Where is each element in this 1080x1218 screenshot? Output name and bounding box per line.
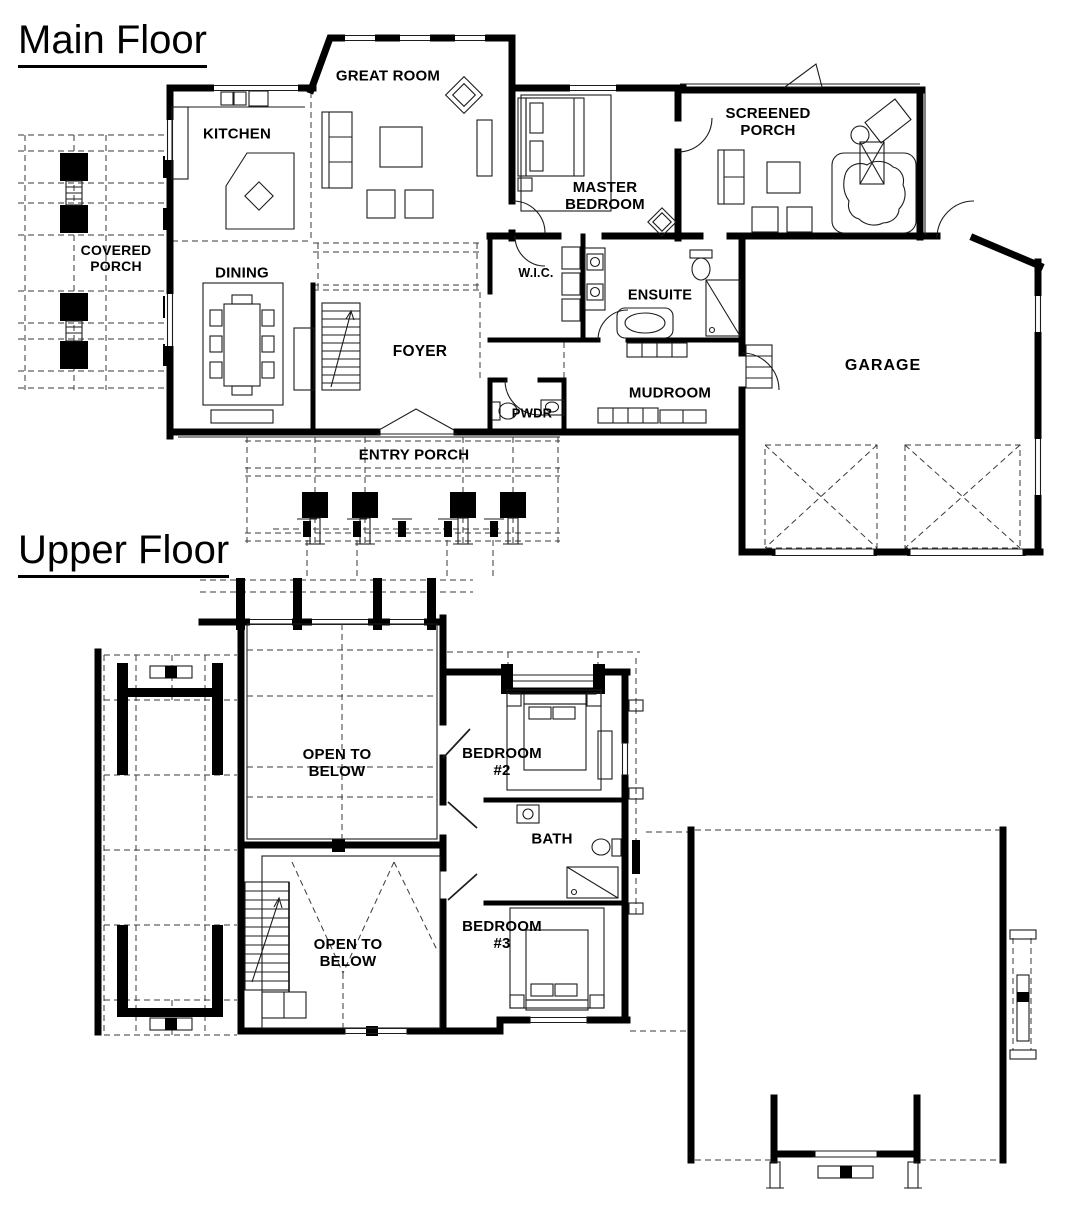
room-label-bedroom-2: BEDROOM #2 xyxy=(462,745,542,780)
bath-fixtures xyxy=(517,805,621,898)
room-label-great-room: GREAT ROOM xyxy=(336,67,440,84)
room-label-open-to-below-rear: OPEN TO BELOW xyxy=(314,936,383,971)
upper-floor-windows xyxy=(250,617,628,1034)
porch-post-icon xyxy=(450,492,476,518)
wic-shelves xyxy=(562,247,580,321)
bed-icon xyxy=(518,98,526,176)
nightstand-icon xyxy=(518,178,532,191)
room-label-foyer: FOYER xyxy=(393,343,447,361)
porch-post-icon xyxy=(500,492,526,518)
porch-post-icon xyxy=(117,663,128,775)
porch-post-icon xyxy=(60,153,88,181)
chair-icon xyxy=(752,207,778,232)
master-bedroom-furniture xyxy=(518,95,676,236)
toilet-icon xyxy=(612,839,621,856)
floor-plan-sheet: Main Floor Upper Floor KITCHEN GREAT ROO… xyxy=(0,0,1080,1218)
room-label-covered-porch: COVERED PORCH xyxy=(81,242,152,274)
dining-furniture xyxy=(203,283,283,423)
stove-icon xyxy=(865,99,911,143)
nightstand-icon xyxy=(590,995,604,1008)
dresser-icon xyxy=(598,731,612,779)
main-stairs-icon xyxy=(294,303,360,390)
room-label-master-bedroom: MASTER BEDROOM xyxy=(565,179,645,214)
room-label-entry-porch: ENTRY PORCH xyxy=(359,446,470,463)
room-label-ensuite: ENSUITE xyxy=(628,288,692,305)
room-label-bedroom-3: BEDROOM #3 xyxy=(462,918,542,953)
toilet-icon xyxy=(690,250,712,258)
room-label-screened-porch: SCREENED PORCH xyxy=(726,105,811,140)
porch-post-icon xyxy=(212,663,223,775)
upper-stairs-icon xyxy=(245,882,306,1018)
porch-post-icon xyxy=(60,341,88,369)
porch-roof-structure xyxy=(98,652,237,1035)
cooktop-icon xyxy=(245,182,273,210)
armchair-icon xyxy=(367,190,395,218)
mudroom-furniture xyxy=(598,343,772,423)
room-label-bath: BATH xyxy=(531,830,572,847)
porch-post-icon xyxy=(302,492,328,518)
garage-parking-stalls xyxy=(765,445,1020,548)
great-room-furniture xyxy=(322,77,492,218)
porch-post-icon xyxy=(117,925,128,1017)
room-label-open-to-below-front: OPEN TO BELOW xyxy=(303,746,372,781)
upper-floor-plan xyxy=(98,519,1036,1188)
porch-post-icon xyxy=(60,205,88,233)
room-label-dining: DINING xyxy=(215,264,269,281)
armchair-icon xyxy=(405,190,433,218)
side-table-icon xyxy=(767,162,800,193)
room-label-pwdr: PWDR xyxy=(512,407,553,422)
kitchen-island-icon xyxy=(226,153,294,229)
main-floor-windows xyxy=(165,33,1043,556)
porch-post-icon xyxy=(60,293,88,321)
room-label-wic: W.I.C. xyxy=(518,266,553,280)
room-label-kitchen: KITCHEN xyxy=(203,125,271,142)
main-floor-title: Main Floor xyxy=(18,18,207,63)
sofa-icon xyxy=(322,112,352,188)
kitchen-furniture xyxy=(172,91,305,229)
chair-icon xyxy=(787,207,812,232)
roof-beam-posts xyxy=(297,519,504,537)
vanity-icon xyxy=(517,805,539,823)
upper-floor-title: Upper Floor xyxy=(18,528,229,573)
kitchen-sink-icon xyxy=(221,92,233,105)
main-floor-plan xyxy=(18,33,1043,556)
range-icon xyxy=(249,91,268,106)
room-label-mudroom: MUDROOM xyxy=(629,384,711,401)
bed-icon xyxy=(524,694,586,704)
porch-post-icon xyxy=(212,925,223,1017)
dining-table-icon xyxy=(224,304,260,386)
nightstand-icon xyxy=(510,995,524,1008)
sideboard-icon xyxy=(211,410,273,423)
room-label-garage: GARAGE xyxy=(845,357,921,375)
nightstand-icon xyxy=(587,693,601,706)
garage-roof-outline xyxy=(691,830,1036,1188)
porch-post-icon xyxy=(352,492,378,518)
corner-chair-icon xyxy=(446,77,483,114)
media-console-icon xyxy=(477,120,492,176)
upper-floor-walls xyxy=(202,578,627,1036)
floor-plan-drawing xyxy=(0,0,1080,1218)
coffee-table-icon xyxy=(380,127,422,167)
nightstand-icon xyxy=(507,693,521,706)
